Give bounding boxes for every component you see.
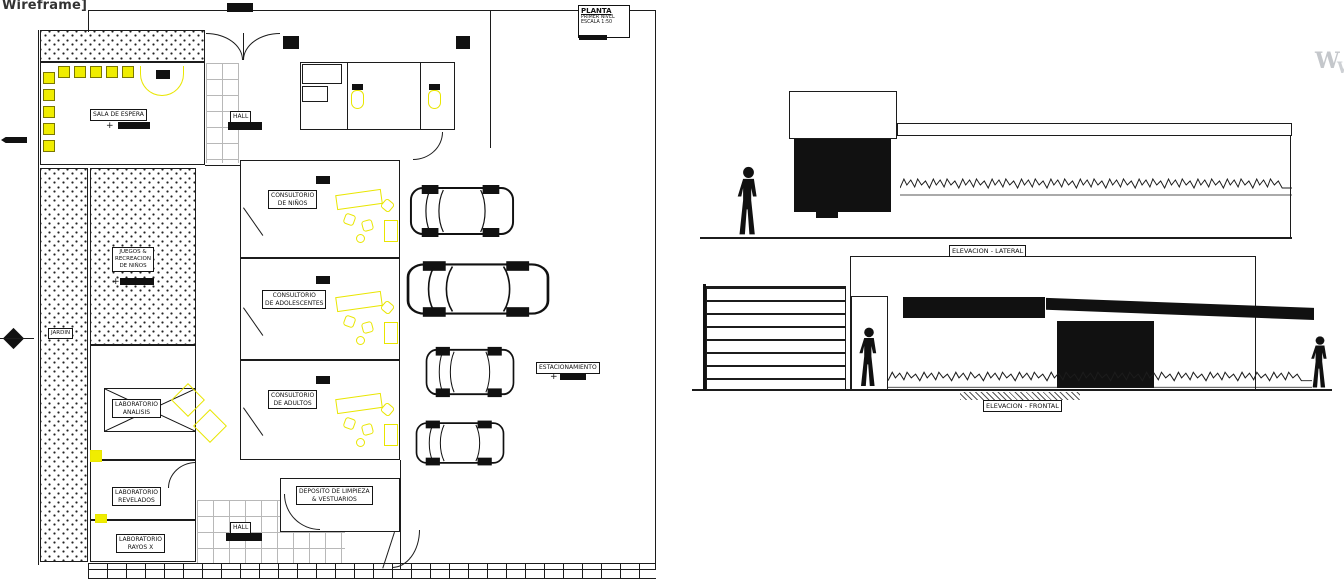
viewport-mode-label: Wireframe] [2, 0, 87, 13]
window-marker [316, 376, 330, 384]
sidewalk-strip [88, 563, 656, 579]
title-block-bar [579, 35, 607, 40]
cabinet-icon [384, 424, 398, 446]
label-line: CONSULTORIO [271, 392, 314, 400]
elev-parapet [789, 91, 897, 139]
person-silhouette-icon [735, 165, 762, 239]
hatched-wall-band [40, 30, 205, 62]
chair-icon [361, 321, 374, 334]
label-line: LABORATORIO [119, 536, 162, 544]
door-leaf [243, 33, 244, 60]
stool-icon [356, 336, 365, 345]
room-label-consultorio-adolescentes: CONSULTORIO DE ADOLESCENTES [262, 290, 326, 309]
lot-boundary-left [38, 30, 39, 565]
label-line: CONSULTORIO [271, 192, 314, 200]
label-line: LABORATORIO [115, 401, 158, 409]
room-label-hall-top: HALL [230, 111, 251, 123]
lot-boundary-top [88, 10, 656, 11]
stool-icon [356, 234, 365, 243]
room-label-consultorio-adultos: CONSULTORIO DE ADULTOS [268, 390, 317, 409]
room-label-lab-revelados: LABORATORIO REVELADOS [112, 487, 161, 506]
cad-viewport[interactable]: Wireframe] W W PLANTA PRIMER NIVEL ESCAL… [0, 0, 1344, 587]
vegetation-icon [900, 168, 1292, 198]
label-line: REVELADOS [115, 497, 158, 505]
ground-line-lateral [700, 237, 1292, 239]
fixture-highlight [90, 450, 102, 462]
elevation-label-frontal: ELEVACION - FRONTAL [983, 400, 1062, 412]
sink-counter-icon [302, 64, 342, 84]
label-line: DEPOSITO DE LIMPIEZA [299, 488, 370, 496]
elev-dark-wall [794, 139, 891, 212]
chair-icon [58, 66, 70, 78]
cross-marker-icon: + [106, 122, 114, 130]
chair-icon [43, 123, 55, 135]
car-top-view-icon [404, 258, 552, 320]
label-line: & VESTUARIOS [299, 496, 370, 504]
desk-icon [335, 291, 383, 312]
louver-fence [706, 286, 846, 390]
room-label-sala-espera: SALA DE ESPERA [90, 109, 147, 121]
chair-icon [90, 66, 102, 78]
door-swing-arc [413, 132, 443, 160]
label-line: ANALISIS [115, 409, 158, 417]
car-top-view-icon [408, 182, 516, 240]
area-label-juegos: JUEGOS & RECREACION DE NIÑOS [112, 247, 154, 272]
chair-icon [342, 416, 356, 430]
label-line: RECREACION [115, 256, 151, 263]
toilet-icon [351, 90, 364, 109]
chair-icon [43, 89, 55, 101]
toilet-icon [428, 90, 441, 109]
car-top-view-icon [414, 418, 506, 468]
label-line: DE ADULTOS [271, 400, 314, 408]
label-line: JUEGOS & [115, 249, 151, 256]
column-icon [283, 36, 299, 49]
stool-icon [356, 438, 365, 447]
door-diamond-icon [193, 409, 227, 443]
arrow-marker-icon [1, 137, 27, 143]
office-furniture-icon [336, 290, 400, 354]
label-line: RAYOS X [119, 544, 162, 552]
cabinet-icon [384, 322, 398, 344]
room-label-deposito: DEPOSITO DE LIMPIEZA & VESTUARIOS [296, 486, 373, 505]
elevation-label-lateral: ELEVACION - LATERAL [949, 245, 1026, 257]
garden-strip [40, 168, 88, 562]
person-silhouette-icon [857, 326, 881, 390]
office-furniture-icon [336, 188, 400, 252]
door-swing-arc [243, 33, 280, 60]
area-label-jardin: JARDIN [48, 328, 73, 339]
vegetation-icon [888, 362, 1312, 390]
plan-title: PLANTA [581, 7, 627, 15]
person-silhouette-icon [1309, 335, 1331, 391]
wall-segment [490, 10, 491, 148]
bathroom-divider [347, 62, 348, 130]
label-bar [118, 122, 150, 129]
label-line: CONSULTORIO [265, 292, 323, 300]
watermark-logo-partial: W [1337, 58, 1344, 77]
chair-icon [43, 140, 55, 152]
lot-boundary-right [655, 10, 656, 570]
chair-icon [342, 314, 356, 328]
chair-icon [43, 106, 55, 118]
marker-line [0, 338, 34, 339]
room-label-lab-rayosx: LABORATORIO RAYOS X [116, 534, 165, 553]
cross-marker-icon: + [550, 373, 558, 381]
hatch-strip [960, 392, 1080, 400]
fixture-highlight [95, 514, 107, 523]
desk-icon [335, 393, 383, 414]
watermark-logo: W [1315, 48, 1340, 74]
elev-roof-slab [897, 123, 1292, 136]
label-line: DE ADOLESCENTES [265, 300, 323, 308]
bathroom-divider [420, 62, 421, 130]
section-marker-icon [227, 3, 253, 12]
chair-icon [361, 423, 374, 436]
wall-segment [205, 165, 240, 166]
chair-icon [43, 72, 55, 84]
room-label-lab-analisis: LABORATORIO ANALISIS [112, 399, 161, 418]
label-line: DE NIÑOS [271, 200, 314, 208]
chair-icon [361, 219, 374, 232]
window-marker [316, 276, 330, 284]
chair-icon [122, 66, 134, 78]
desk-icon [335, 189, 383, 210]
room-label-hall-bottom: HALL [230, 522, 251, 534]
area-label-estacionamiento: ESTACIONAMIENTO [536, 362, 600, 374]
car-top-view-icon [424, 344, 516, 400]
chair-icon [106, 66, 118, 78]
plan-scale: ESCALA 1:50 [581, 20, 627, 25]
stair-bar [226, 533, 262, 541]
chair-icon [74, 66, 86, 78]
title-block: PLANTA PRIMER NIVEL ESCALA 1:50 [578, 5, 630, 38]
room-label-consultorio-ninos: CONSULTORIO DE NIÑOS [268, 190, 317, 209]
sink-icon [302, 86, 328, 102]
cross-marker-icon: + [112, 278, 120, 286]
label-bar [120, 278, 154, 285]
elev-base-tab [816, 212, 838, 218]
window-marker [316, 176, 330, 184]
stair-bar [228, 122, 262, 130]
label-bar [560, 373, 586, 380]
label-line: LABORATORIO [115, 489, 158, 497]
office-furniture-icon [336, 392, 400, 456]
cabinet-icon [384, 220, 398, 242]
chair-icon [342, 212, 356, 226]
label-line: DE NIÑOS [115, 263, 151, 270]
door-swing-arc [206, 33, 243, 60]
wall-segment [88, 10, 89, 32]
column-icon [456, 36, 470, 49]
elev-window-band [903, 297, 1045, 318]
